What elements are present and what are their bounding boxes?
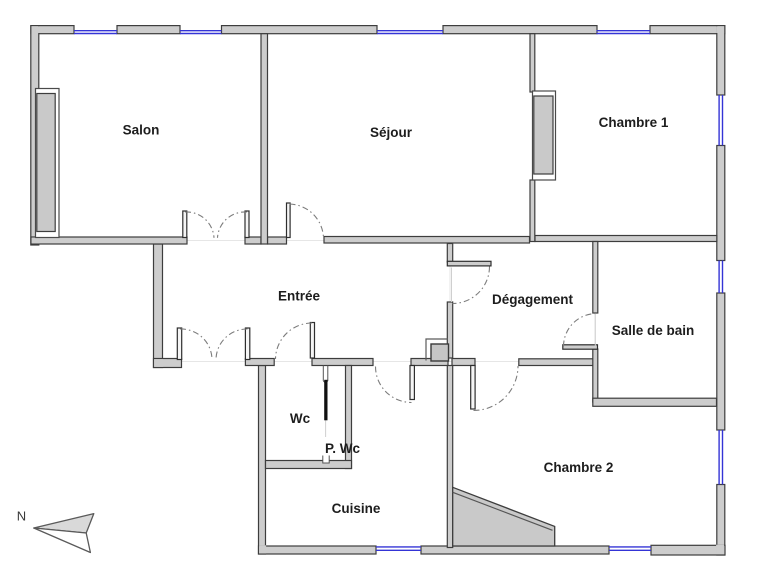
svg-text:Entrée: Entrée (278, 289, 321, 304)
svg-text:P. Wc: P. Wc (325, 441, 361, 456)
svg-text:Salle de bain: Salle de bain (612, 323, 695, 338)
svg-text:N: N (17, 509, 26, 524)
svg-text:Cuisine: Cuisine (332, 501, 381, 516)
svg-text:Chambre 1: Chambre 1 (599, 115, 669, 130)
svg-text:Wc: Wc (290, 411, 311, 426)
svg-text:Salon: Salon (123, 123, 160, 138)
svg-text:Séjour: Séjour (370, 125, 413, 140)
svg-text:Chambre 2: Chambre 2 (544, 460, 614, 475)
svg-text:Dégagement: Dégagement (492, 292, 574, 307)
